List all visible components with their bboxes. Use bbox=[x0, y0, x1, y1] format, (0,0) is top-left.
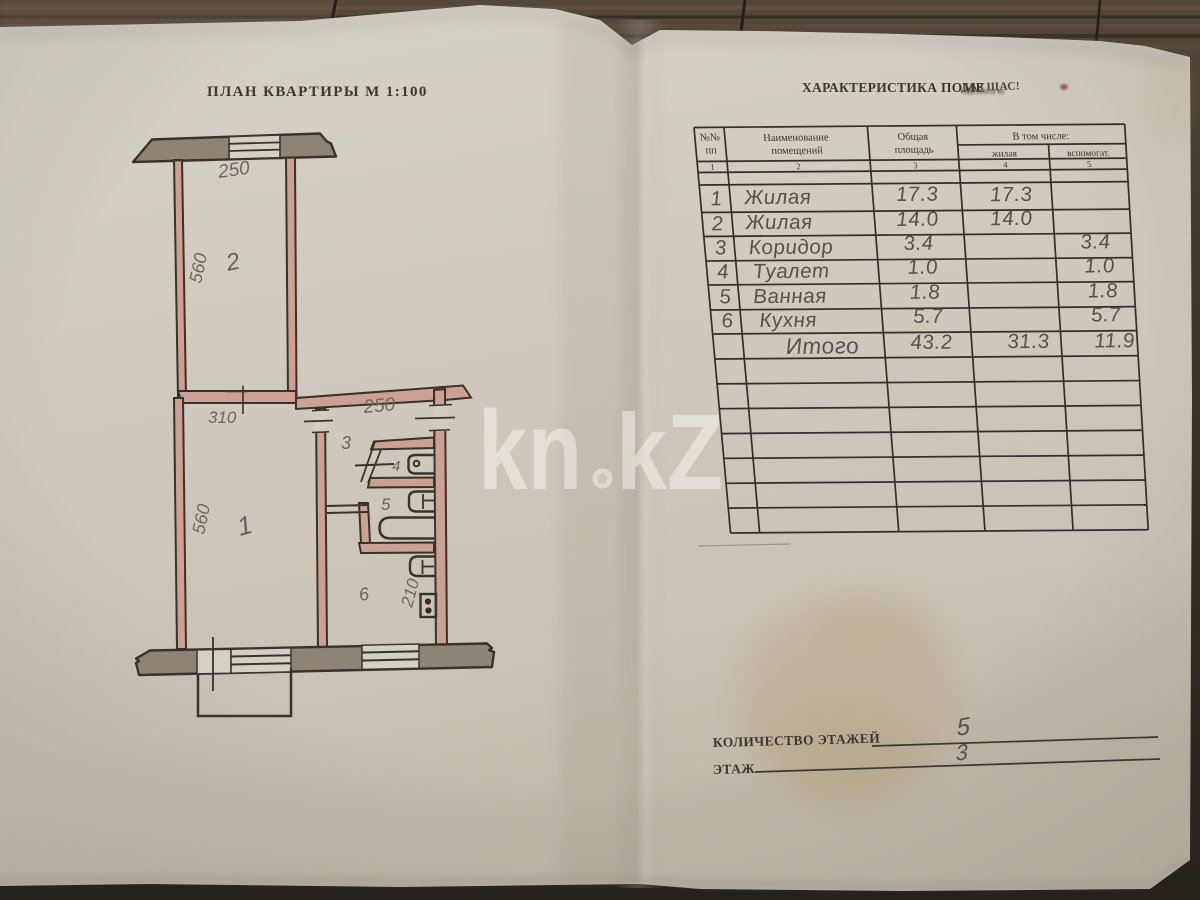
svg-text:14.0: 14.0 bbox=[989, 207, 1033, 230]
svg-text:щеним й: щеним й bbox=[963, 86, 1004, 97]
svg-text:3: 3 bbox=[714, 236, 728, 259]
svg-text:Итого: Итого bbox=[785, 333, 861, 359]
svg-text:5: 5 bbox=[956, 712, 971, 742]
svg-text:17.3: 17.3 bbox=[895, 183, 939, 206]
svg-text:Общая: Общая bbox=[897, 132, 929, 143]
svg-text:14.0: 14.0 bbox=[895, 208, 939, 231]
svg-text:жилая: жилая bbox=[991, 149, 1018, 159]
svg-text:помещений: помещений bbox=[771, 146, 824, 157]
svg-text:4: 4 bbox=[392, 458, 400, 475]
svg-text:kZ: kZ bbox=[616, 391, 723, 512]
svg-text:1.8: 1.8 bbox=[1087, 279, 1119, 302]
svg-text:3: 3 bbox=[913, 160, 918, 170]
svg-text:В том числе:: В том числе: bbox=[1012, 131, 1070, 142]
svg-text:Жилая: Жилая bbox=[744, 211, 814, 234]
svg-text:2: 2 bbox=[710, 212, 725, 235]
svg-text:Наименование: Наименование bbox=[763, 132, 830, 143]
svg-text:3.4: 3.4 bbox=[1079, 230, 1111, 253]
svg-text:5: 5 bbox=[718, 285, 732, 308]
svg-text:ЭТАЖ: ЭТАЖ bbox=[713, 761, 756, 777]
svg-text:3: 3 bbox=[341, 433, 351, 453]
svg-text:пп: пп bbox=[705, 145, 718, 156]
svg-text:3.4: 3.4 bbox=[902, 232, 934, 255]
svg-text:Коридор: Коридор bbox=[748, 236, 835, 260]
svg-text:5.7: 5.7 bbox=[912, 305, 945, 328]
svg-text:31.3: 31.3 bbox=[1006, 330, 1050, 353]
svg-text:1.0: 1.0 bbox=[1083, 254, 1115, 277]
svg-text:площадь: площадь bbox=[894, 145, 934, 156]
svg-text:ПЛАН КВАРТИРЫ М 1:100: ПЛАН КВАРТИРЫ М 1:100 bbox=[207, 84, 428, 100]
svg-text:6: 6 bbox=[720, 309, 734, 332]
svg-text:вспомогат.: вспомогат. bbox=[1067, 149, 1111, 159]
svg-text:Туалет: Туалет bbox=[752, 260, 831, 284]
svg-text:2: 2 bbox=[796, 161, 801, 171]
svg-text:1: 1 bbox=[710, 162, 715, 172]
svg-text:№№: №№ bbox=[699, 132, 720, 143]
svg-text:Кухня: Кухня bbox=[758, 309, 818, 332]
svg-text:250: 250 bbox=[362, 394, 397, 418]
svg-text:5.7: 5.7 bbox=[1090, 303, 1123, 326]
svg-text:kn: kn bbox=[478, 388, 582, 513]
svg-text:5: 5 bbox=[1087, 159, 1092, 169]
svg-text:17.3: 17.3 bbox=[989, 183, 1033, 206]
svg-text:310: 310 bbox=[208, 408, 237, 427]
svg-text:11.9: 11.9 bbox=[1093, 329, 1136, 352]
svg-text:1.0: 1.0 bbox=[907, 256, 939, 279]
svg-text:4: 4 bbox=[716, 260, 730, 283]
svg-text:Жилая: Жилая bbox=[742, 186, 812, 209]
svg-text:5: 5 bbox=[381, 495, 391, 514]
svg-text:1.8: 1.8 bbox=[909, 281, 941, 304]
svg-text:3: 3 bbox=[955, 739, 969, 766]
svg-text:Ванная: Ванная bbox=[752, 285, 828, 309]
svg-text:1: 1 bbox=[709, 187, 723, 210]
svg-text:ХАРАКТЕРИСТИКА ПОМЕ: ХАРАКТЕРИСТИКА ПОМЕ bbox=[802, 80, 985, 95]
svg-text:43.2: 43.2 bbox=[909, 331, 953, 354]
